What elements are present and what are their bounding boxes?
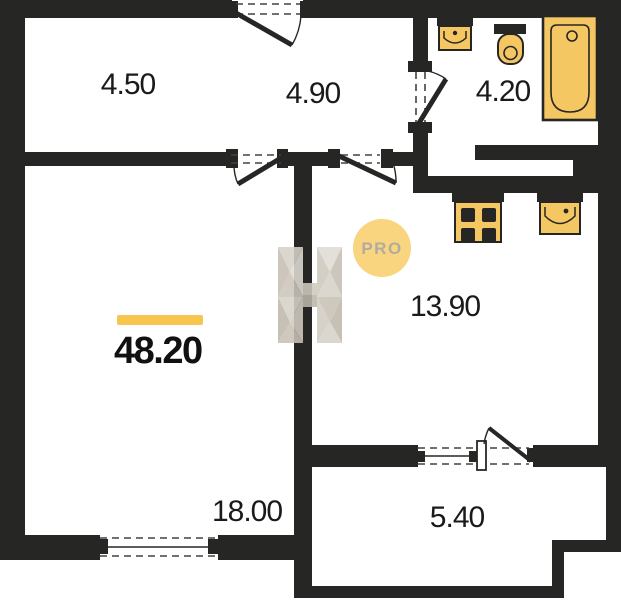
bathtub-icon bbox=[543, 16, 597, 120]
room-label-bathroom: 4.20 bbox=[476, 77, 530, 107]
room-label-storage: 4.50 bbox=[101, 70, 155, 100]
total-area: 48.20 bbox=[114, 315, 203, 370]
room-label-kitchen: 13.90 bbox=[410, 292, 480, 322]
toilet-icon bbox=[494, 24, 526, 64]
pro-badge-label: PRO bbox=[361, 240, 402, 257]
bathroom-sink-icon bbox=[437, 18, 473, 50]
floor-plan: 4.50 4.90 4.20 13.90 18.00 5.40 48.20 PR… bbox=[0, 0, 621, 600]
door-bathroom bbox=[419, 71, 446, 123]
door-entrance bbox=[236, 13, 301, 45]
pro-badge: PRO bbox=[353, 219, 411, 277]
room-label-living: 18.00 bbox=[212, 497, 282, 527]
stove-icon bbox=[452, 193, 504, 242]
total-area-value: 48.20 bbox=[114, 332, 203, 370]
room-label-hallway: 4.90 bbox=[286, 79, 340, 109]
room-label-balcony: 5.40 bbox=[430, 503, 484, 533]
total-area-underline bbox=[117, 315, 203, 325]
door-hall-living bbox=[234, 158, 281, 184]
kitchen-sink-icon bbox=[537, 193, 583, 234]
